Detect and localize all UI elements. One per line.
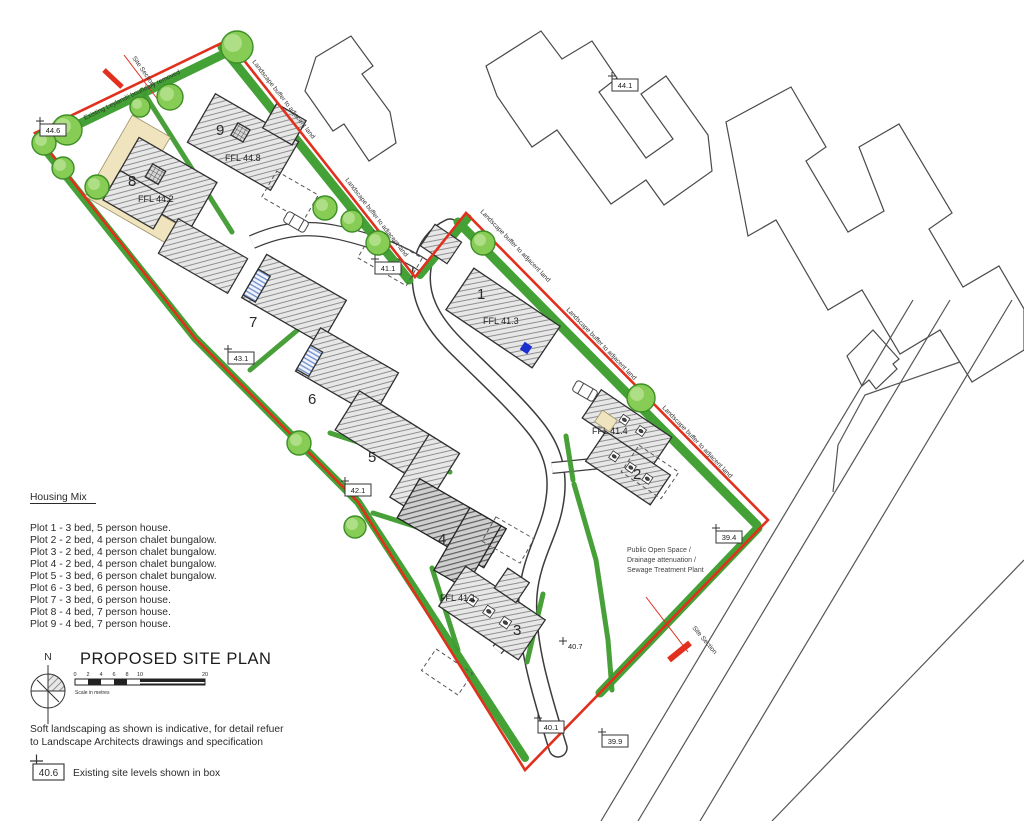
- tree: [130, 97, 150, 117]
- level-marker: 44.1: [608, 72, 638, 91]
- levels-legend: 40.6 Existing site levels shown in box: [30, 755, 221, 781]
- level-value: 39.4: [722, 533, 737, 542]
- level-value: 42.1: [351, 486, 366, 495]
- plot-3-number: 3: [513, 622, 521, 639]
- car: [572, 380, 599, 402]
- pos-label-line1: Public Open Space /: [627, 547, 691, 554]
- plot-9-ffl: FFL 44.8: [225, 153, 261, 163]
- plot-6-number: 6: [308, 391, 316, 408]
- neighbour-building-outline: [726, 87, 1024, 382]
- road-jog-line: [833, 362, 960, 492]
- tree: [344, 516, 366, 538]
- housing-mix-heading: Housing Mix: [30, 492, 88, 503]
- plot-8-number: 8: [128, 173, 136, 190]
- housing-mix-item: Plot 2 - 2 bed, 4 person chalet bungalow…: [30, 535, 217, 546]
- housing-mix-item: Plot 9 - 4 bed, 7 person house.: [30, 619, 171, 630]
- landscaping-note-line1: Soft landscaping as shown is indicative,…: [30, 724, 284, 735]
- plot-2-number: 2: [633, 466, 641, 483]
- level-marker: 43.1: [224, 345, 254, 364]
- level-value: 43.1: [234, 354, 249, 363]
- level-marker: 42.1: [341, 477, 371, 496]
- neighbour-buildings: [305, 31, 1024, 389]
- scale-tick: 6: [112, 672, 115, 678]
- tree: [157, 84, 183, 110]
- plot-5-number: 5: [368, 449, 376, 466]
- tree: [471, 231, 495, 255]
- site-plan-drawing: 44.6 44.1 43.1 42.1 41.1 39.4: [0, 0, 1024, 821]
- level-example-value: 40.6: [39, 768, 59, 779]
- spot-level-value: 40.7: [568, 642, 583, 651]
- scale-tick: 4: [99, 672, 102, 678]
- spot-level: 40.7: [559, 637, 583, 651]
- scale-segment: [88, 679, 101, 685]
- plot-7-number: 7: [249, 314, 257, 331]
- scale-segment: [140, 684, 205, 686]
- scale-tick: 0: [73, 672, 76, 678]
- housing-mix-item: Plot 8 - 4 bed, 7 person house.: [30, 607, 171, 618]
- tree: [627, 384, 655, 412]
- scale-segment: [140, 679, 205, 682]
- level-value: 44.6: [46, 126, 61, 135]
- site-section-label: Site Section: [690, 625, 718, 656]
- pos-label-line3: Sewage Treatment Plant: [627, 567, 704, 574]
- scale-caption: Scale in metres: [75, 690, 110, 696]
- neighbour-building-outline: [305, 36, 396, 161]
- north-arrow: N: [31, 652, 65, 724]
- drawing-title: PROPOSED SITE PLAN: [80, 650, 271, 668]
- tree: [313, 196, 337, 220]
- plot-4-number: 4: [438, 531, 446, 548]
- tree: [221, 31, 253, 63]
- tree: [85, 175, 109, 199]
- scale-bar: 0 2 4 6 8 10 20 Scale in metres: [73, 672, 208, 696]
- tree: [341, 210, 363, 232]
- road-kerb-line: [700, 300, 1012, 821]
- housing-mix-item: Plot 4 - 2 bed, 4 person chalet bungalow…: [30, 559, 217, 570]
- neighbour-building-outline: [486, 31, 712, 205]
- site-plan-sheet: 44.6 44.1 43.1 42.1 41.1 39.4: [0, 0, 1024, 821]
- scale-tick: 20: [202, 672, 208, 678]
- road-kerb-line: [772, 560, 1024, 821]
- level-marker: 39.4: [712, 524, 742, 543]
- landscaping-note-line2: to Landscape Architects drawings and spe…: [30, 737, 263, 748]
- plot-1-number: 1: [477, 286, 485, 303]
- hedge: [574, 484, 612, 690]
- plot-9-number: 9: [216, 122, 224, 139]
- plot-2-ffl: FFL 41.4: [592, 426, 628, 436]
- level-value: 40.1: [544, 723, 559, 732]
- housing-mix-block: Housing Mix Plot 1 - 3 bed, 5 person hou…: [30, 492, 217, 630]
- plot-1-ffl: FFL 41.3: [483, 316, 519, 326]
- notes-block: Soft landscaping as shown is indicative,…: [30, 724, 284, 748]
- site-section-label: Site Section: [130, 55, 156, 88]
- levels-legend-caption: Existing site levels shown in box: [73, 768, 221, 779]
- plot-3-ffl: FFL 41.1: [440, 593, 476, 603]
- plot-9-building: [187, 75, 309, 191]
- garage-court: [158, 219, 247, 294]
- scale-tick: 10: [137, 672, 143, 678]
- housing-mix-item: Plot 7 - 3 bed, 6 person house.: [30, 595, 171, 606]
- level-value: 39.9: [608, 737, 623, 746]
- scale-tick: 8: [125, 672, 128, 678]
- housing-mix-item: Plot 5 - 3 bed, 6 person chalet bungalow…: [30, 571, 217, 582]
- tree: [287, 431, 311, 455]
- level-value: 44.1: [618, 81, 633, 90]
- plot-2-building: [563, 390, 688, 505]
- level-value: 41.1: [381, 264, 396, 273]
- buffer-strip: [458, 222, 757, 525]
- housing-mix-item: Plot 3 - 2 bed, 4 person chalet bungalow…: [30, 547, 217, 558]
- housing-mix-item: Plot 1 - 3 bed, 5 person house.: [30, 523, 171, 534]
- scale-tick: 2: [86, 672, 89, 678]
- north-label: N: [44, 652, 51, 663]
- plot-8-ffl: FFL 44.2: [138, 194, 174, 204]
- hedge: [566, 436, 573, 480]
- level-marker: 39.9: [598, 728, 628, 747]
- court-roof: [158, 219, 247, 294]
- pos-label-line2: Drainage attenuation /: [627, 557, 696, 564]
- tree: [52, 157, 74, 179]
- housing-mix-item: Plot 6 - 3 bed, 6 person house.: [30, 583, 171, 594]
- scale-segment: [114, 679, 127, 685]
